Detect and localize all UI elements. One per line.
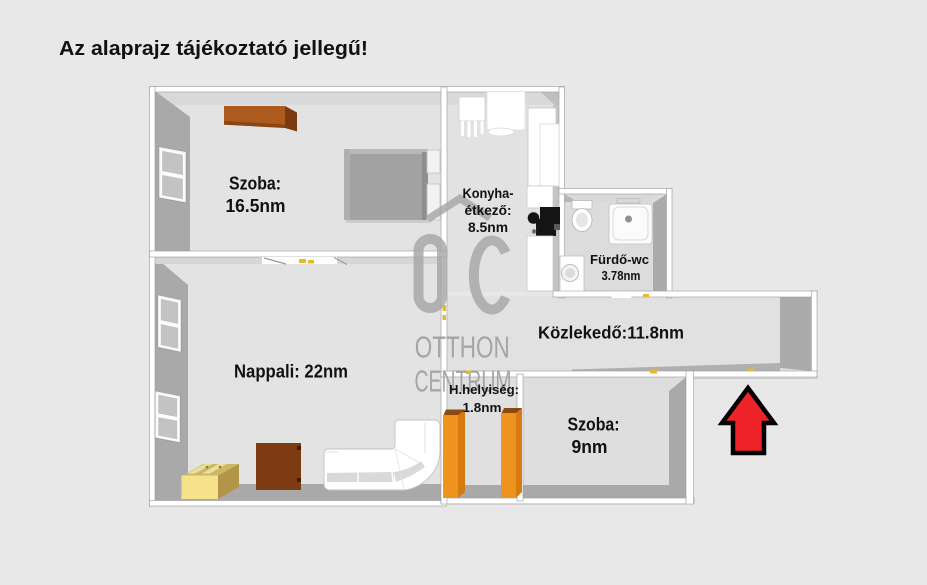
svg-text:16.5nm: 16.5nm	[226, 196, 286, 216]
svg-text:8.5nm: 8.5nm	[468, 219, 508, 235]
svg-text:Szoba:: Szoba:	[229, 173, 281, 193]
svg-text:OTTHON: OTTHON	[415, 331, 510, 365]
svg-text:Nappali: 22nm: Nappali: 22nm	[234, 362, 348, 382]
svg-text:Közlekedő:11.8nm: Közlekedő:11.8nm	[538, 323, 684, 343]
svg-text:Konyha-: Konyha-	[463, 185, 514, 201]
svg-text:✺: ✺	[531, 228, 537, 236]
svg-text:1.8nm: 1.8nm	[463, 400, 502, 415]
svg-text:H.helyiség:: H.helyiség:	[449, 382, 519, 397]
svg-text:Fürdő-wc: Fürdő-wc	[590, 253, 649, 267]
svg-text:Az alaprajz tájékoztató jelleg: Az alaprajz tájékoztató jellegű!	[59, 38, 368, 60]
svg-text:3.78nm: 3.78nm	[602, 269, 641, 283]
svg-text:9nm: 9nm	[572, 437, 608, 457]
svg-text:étkező:: étkező:	[465, 202, 512, 218]
svg-text:Szoba:: Szoba:	[568, 415, 620, 435]
